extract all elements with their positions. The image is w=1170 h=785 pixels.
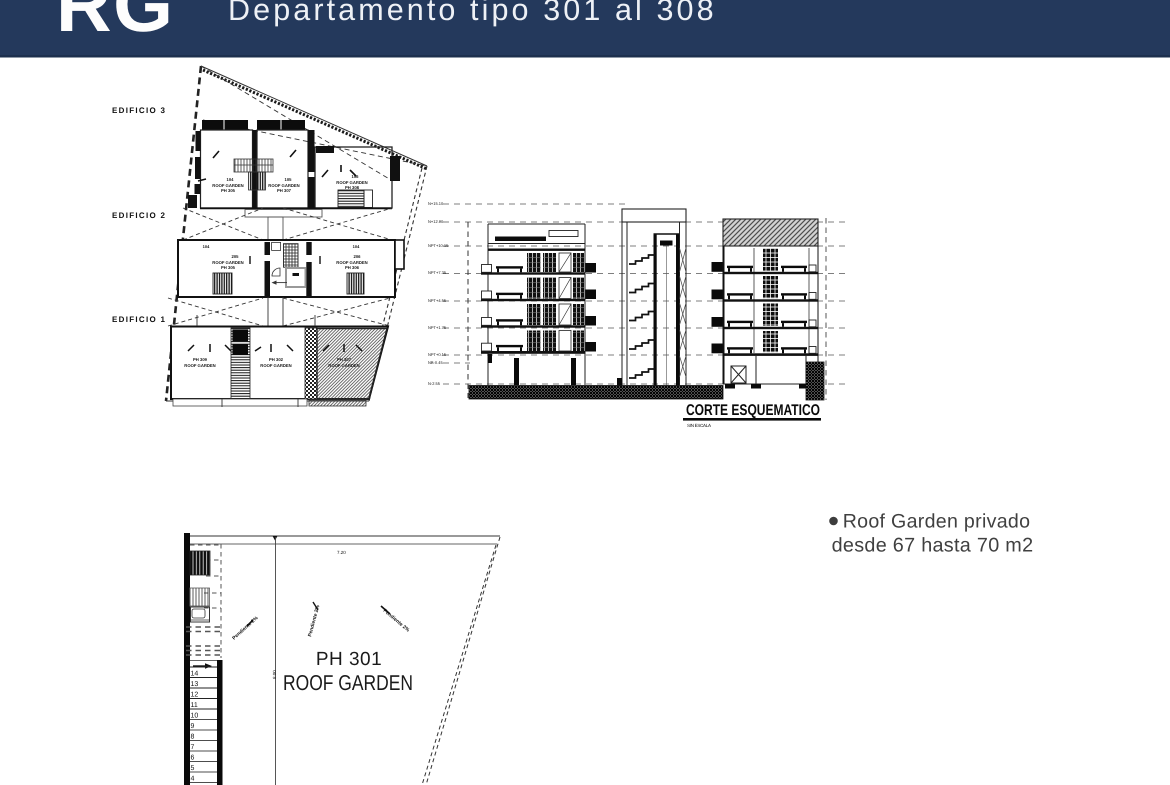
svg-text:7.20: 7.20: [337, 550, 346, 555]
svg-text:NPT+7.35: NPT+7.35: [428, 270, 447, 275]
svg-text:6: 6: [191, 755, 195, 762]
svg-text:14: 14: [191, 671, 199, 678]
svg-text:104: 104: [227, 177, 235, 182]
svg-text:4: 4: [191, 776, 195, 783]
svg-text:5: 5: [191, 765, 195, 772]
svg-text:EDIFICIO 3: EDIFICIO 3: [112, 106, 166, 115]
svg-text:EDIFICIO 1: EDIFICIO 1: [112, 315, 166, 324]
svg-text:104: 104: [353, 244, 360, 249]
svg-text:PH 302: PH 302: [269, 357, 284, 362]
svg-text:206: 206: [354, 254, 362, 259]
svg-text:Departamento tipo 301 al 308: Departamento tipo 301 al 308: [228, 0, 717, 27]
svg-text:PH 306: PH 306: [345, 265, 360, 270]
svg-text:8: 8: [191, 734, 195, 741]
svg-text:NB-0.45: NB-0.45: [428, 360, 443, 365]
svg-text:RG: RG: [56, 0, 175, 48]
svg-text:ROOF GARDEN: ROOF GARDEN: [260, 363, 291, 368]
svg-text:NPT+1.75: NPT+1.75: [428, 325, 447, 330]
svg-text:PH 301: PH 301: [316, 649, 382, 670]
svg-text:N+12.90: N+12.90: [428, 219, 444, 224]
svg-text:PH 308: PH 308: [345, 185, 360, 190]
svg-text:104: 104: [203, 244, 210, 249]
svg-text:12: 12: [191, 692, 199, 699]
svg-text:desde 67 hasta 70 m2: desde 67 hasta 70 m2: [832, 535, 1034, 557]
svg-text:NPT+4.55: NPT+4.55: [428, 298, 447, 303]
svg-text:PH 307: PH 307: [337, 357, 352, 362]
svg-text:CORTE ESQUEMATICO: CORTE ESQUEMATICO: [686, 402, 820, 419]
svg-text:NPT+0.15: NPT+0.15: [428, 352, 447, 357]
svg-text:ROOF GARDEN: ROOF GARDEN: [283, 671, 413, 695]
svg-text:N+15.10: N+15.10: [428, 201, 444, 206]
svg-text:NPT+10.15: NPT+10.15: [428, 243, 449, 248]
svg-text:PH 307: PH 307: [277, 188, 292, 193]
svg-text:11: 11: [191, 702, 198, 709]
svg-text:ROOF GARDEN: ROOF GARDEN: [184, 363, 215, 368]
svg-text:SIN ESCALA: SIN ESCALA: [687, 423, 711, 428]
svg-text:Roof Garden privado: Roof Garden privado: [843, 511, 1031, 533]
svg-text:PH 309: PH 309: [193, 357, 208, 362]
svg-text:PH 305: PH 305: [221, 265, 236, 270]
svg-text:205: 205: [232, 254, 240, 259]
svg-text:13: 13: [191, 681, 199, 688]
svg-text:10: 10: [191, 713, 199, 720]
svg-text:105: 105: [285, 177, 293, 182]
svg-text:8.00: 8.00: [272, 670, 277, 679]
svg-text:N-2.55: N-2.55: [428, 381, 441, 386]
svg-text:9: 9: [191, 723, 195, 730]
svg-text:ROOF GARDEN: ROOF GARDEN: [328, 363, 359, 368]
svg-text:7: 7: [191, 744, 195, 751]
svg-text:EDIFICIO 2: EDIFICIO 2: [112, 211, 166, 220]
svg-text:PH 305: PH 305: [221, 188, 236, 193]
svg-text:106: 106: [352, 174, 360, 179]
